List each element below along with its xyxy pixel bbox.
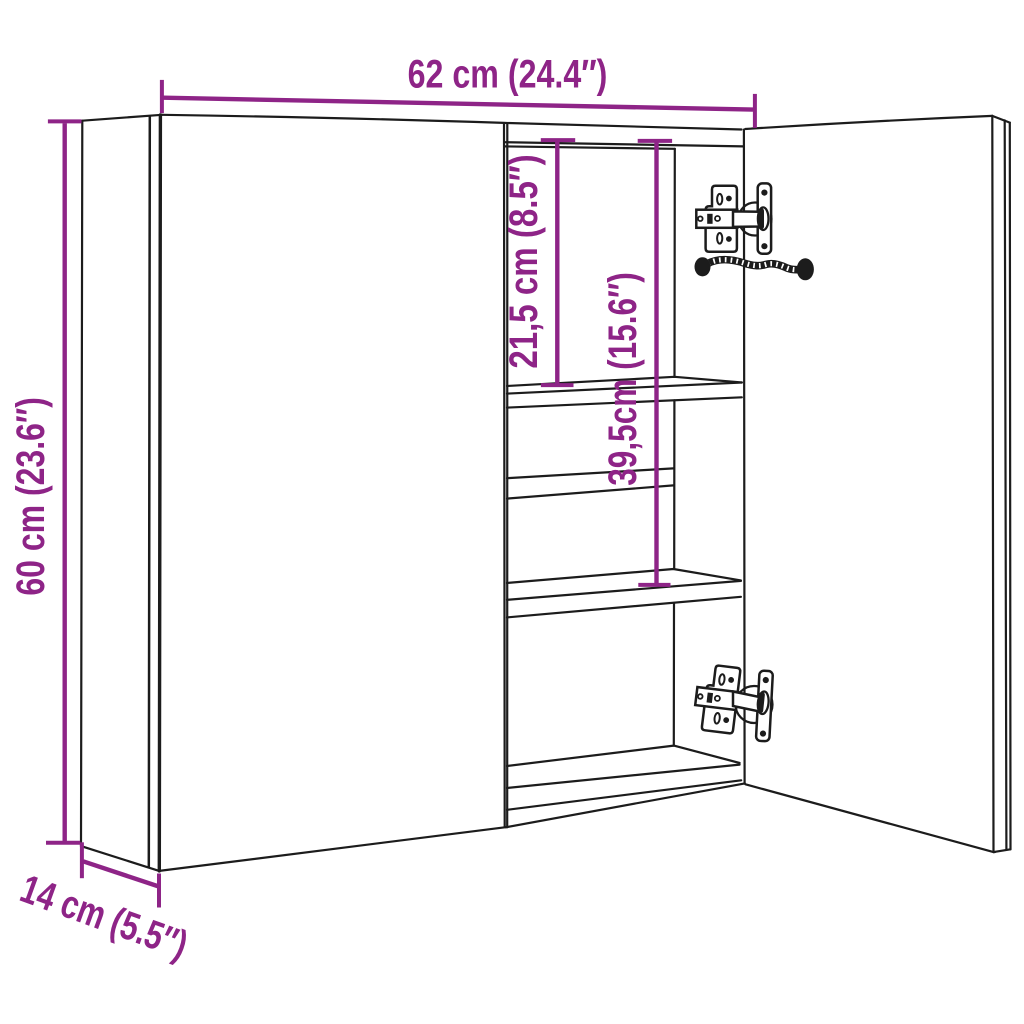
svg-text:60 cm (23.6″): 60 cm (23.6″)	[8, 397, 53, 596]
svg-text:21,5 cm (8.5″): 21,5 cm (8.5″)	[501, 154, 546, 368]
svg-text:62 cm (24.4″): 62 cm (24.4″)	[408, 51, 608, 96]
svg-text:39,5cm (15.6″): 39,5cm (15.6″)	[599, 272, 644, 486]
